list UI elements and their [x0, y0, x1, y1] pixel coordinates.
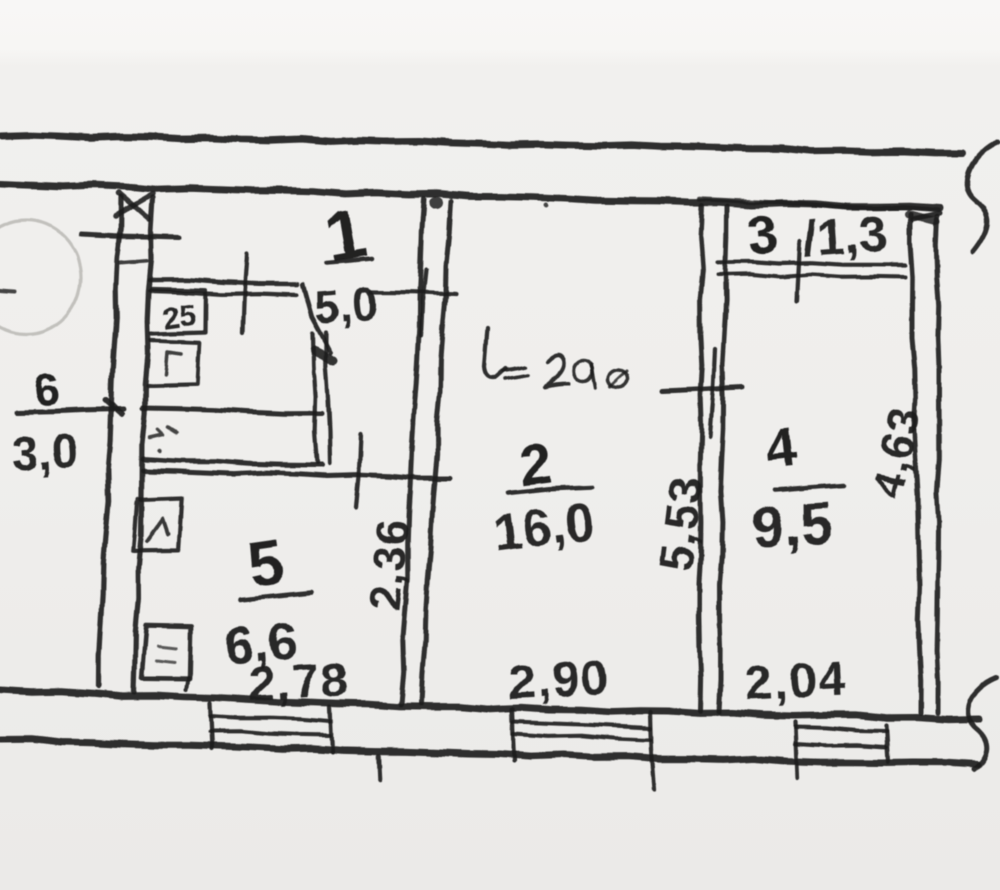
- svg-text:2,90: 2,90: [507, 651, 611, 709]
- svg-text:25: 25: [161, 299, 199, 336]
- svg-text:4: 4: [762, 415, 800, 481]
- svg-text:5,0: 5,0: [312, 277, 379, 333]
- svg-text:3,0: 3,0: [10, 425, 80, 483]
- svg-text:9,5: 9,5: [750, 490, 835, 560]
- svg-text:2,36: 2,36: [360, 516, 418, 612]
- svg-text:/1,3: /1,3: [801, 205, 888, 267]
- svg-text:3: 3: [745, 204, 780, 266]
- svg-text:16,0: 16,0: [490, 493, 598, 563]
- svg-text:6: 6: [32, 362, 61, 416]
- svg-text:2,04: 2,04: [744, 652, 848, 710]
- svg-text:2,78: 2,78: [247, 653, 351, 711]
